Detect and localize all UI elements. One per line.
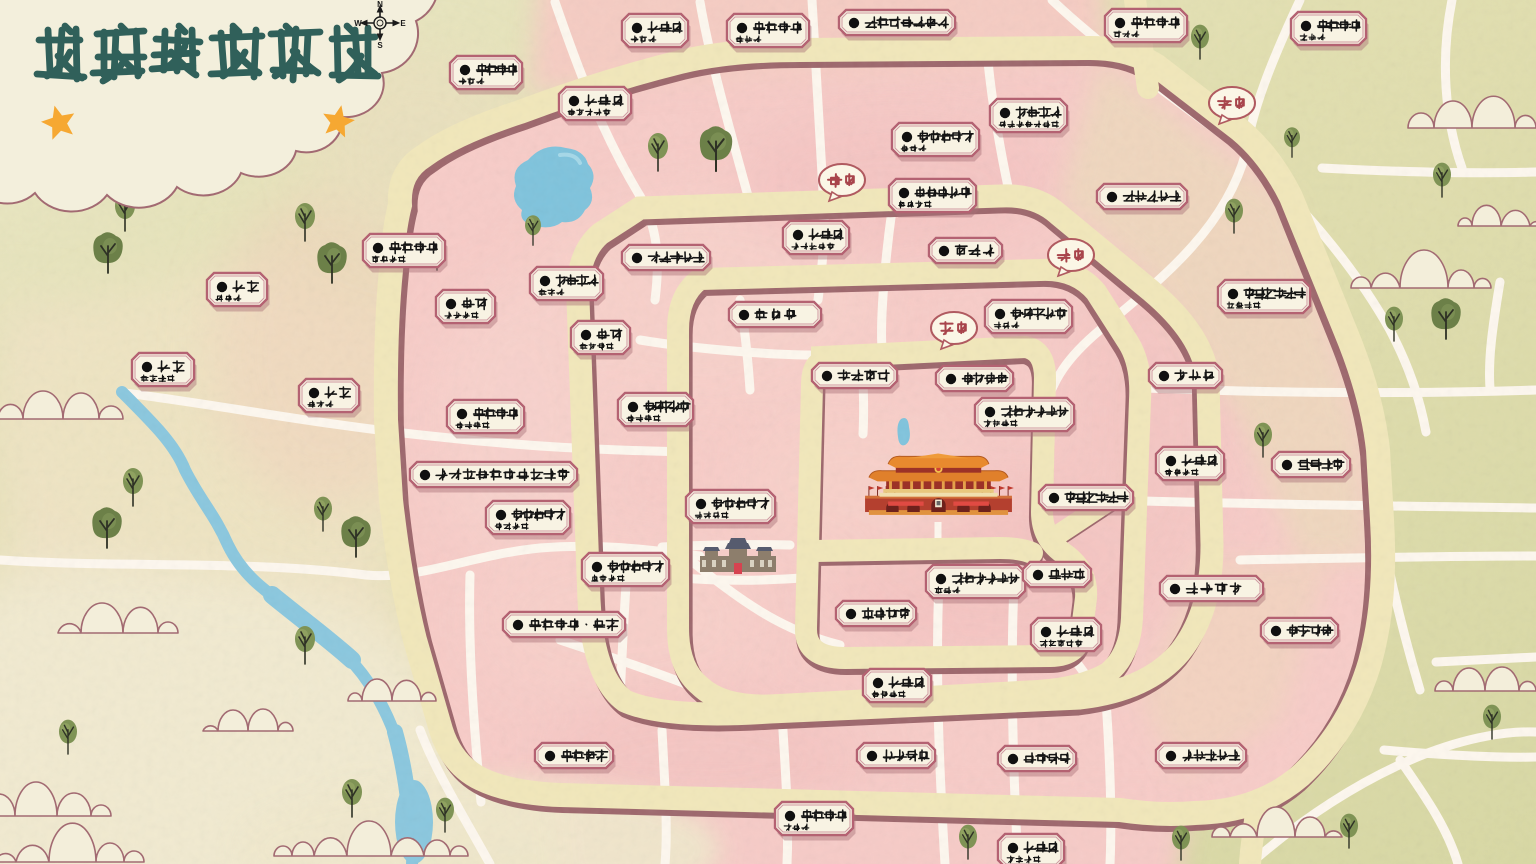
svg-text:E: E (400, 19, 406, 28)
svg-text:S: S (377, 41, 383, 50)
svg-text:W: W (354, 19, 362, 28)
svg-text:N: N (377, 0, 383, 9)
